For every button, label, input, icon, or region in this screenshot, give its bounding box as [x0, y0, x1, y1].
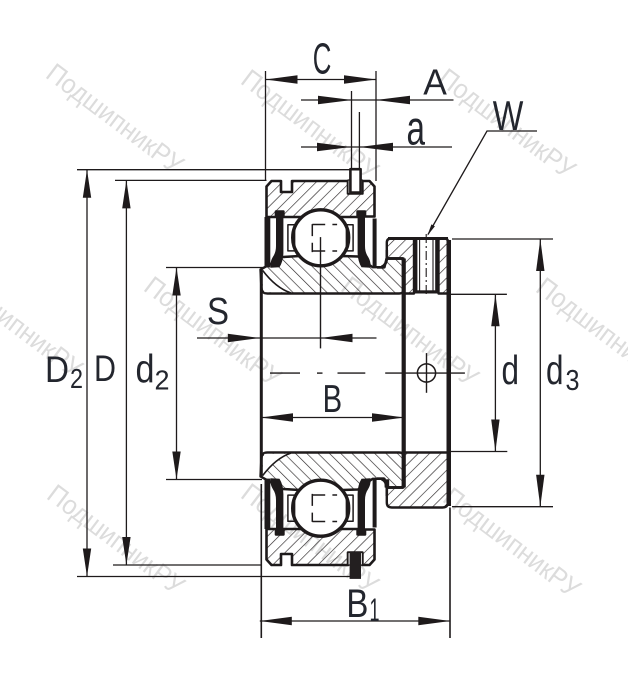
svg-text:3: 3: [566, 365, 580, 397]
svg-text:a: a: [407, 103, 426, 156]
svg-text:D: D: [94, 348, 116, 389]
svg-text:W: W: [493, 92, 524, 139]
svg-text:D: D: [45, 349, 69, 390]
svg-text:d: d: [136, 348, 155, 392]
svg-text:1: 1: [370, 592, 380, 628]
svg-text:S: S: [207, 291, 229, 333]
svg-text:B: B: [346, 582, 368, 626]
svg-text:d: d: [546, 347, 564, 393]
svg-text:d: d: [502, 347, 520, 393]
svg-text:2: 2: [155, 365, 170, 396]
svg-text:2: 2: [70, 363, 83, 394]
svg-text:A: A: [423, 62, 447, 103]
svg-text:B: B: [323, 378, 343, 421]
svg-text:C: C: [313, 34, 332, 83]
